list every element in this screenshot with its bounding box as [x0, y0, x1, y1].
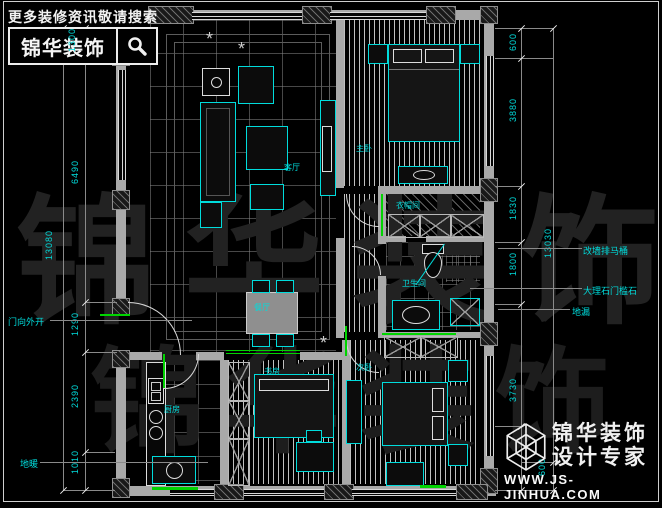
wardrobe-cell [420, 336, 458, 358]
dim-value: 3730 [508, 378, 518, 402]
dim-value: 2390 [70, 384, 80, 408]
column [324, 484, 354, 500]
column [302, 6, 332, 24]
dining-table [246, 292, 298, 334]
leader-line [50, 320, 192, 321]
note-floor-heating: 地暖 [20, 457, 38, 470]
dim-ext [495, 242, 521, 243]
kitchen-sink [148, 378, 164, 404]
dim-value: 1290 [70, 312, 80, 336]
dresser [398, 166, 448, 184]
brand-name: 锦华装饰 [10, 29, 116, 63]
kitchen-door-leaf [163, 354, 165, 388]
dim-line-left-inner [85, 28, 86, 490]
note-marble-threshold: 大理石门槛石 [583, 284, 637, 297]
pillow [425, 49, 454, 63]
leader-line [40, 462, 208, 463]
stove-burner [149, 410, 163, 424]
wall-corridor-right-b [378, 276, 386, 336]
window [170, 489, 214, 496]
column [112, 190, 130, 210]
dim-ext [495, 304, 521, 305]
wardrobe-cell [384, 336, 422, 358]
wall-living-master [336, 20, 344, 188]
nightstand [448, 360, 468, 382]
sofa [200, 102, 236, 202]
chair [252, 334, 270, 347]
room-label-kitchen: 厨房 [164, 404, 180, 415]
dim-line-right-outer [553, 28, 554, 490]
wardrobe-cell [228, 362, 250, 402]
leader-line [498, 248, 582, 249]
wall-rooms-top-c [300, 352, 344, 360]
washer [152, 456, 196, 484]
cube-logo-icon [503, 422, 549, 477]
leader-line [498, 309, 570, 310]
desk-cabinet [346, 380, 362, 444]
master-bed [388, 44, 460, 142]
wardrobe-cell [450, 214, 484, 238]
note-floor-drain: 地漏 [572, 305, 590, 318]
chair [276, 280, 294, 293]
room-label-living: 客厅 [284, 162, 300, 173]
pillow [432, 388, 444, 412]
study-bed [254, 374, 334, 438]
armchair [238, 66, 274, 104]
pillow [393, 49, 422, 63]
chair [252, 280, 270, 293]
window [330, 12, 426, 20]
nightstand [448, 444, 468, 466]
column [214, 484, 244, 500]
frame-right [658, 1, 659, 502]
chair [276, 334, 294, 347]
side-table [202, 68, 230, 96]
wall-left-lower [116, 356, 126, 490]
dim-ext [85, 452, 115, 453]
coffee-table [246, 126, 288, 170]
threshold-line [382, 333, 456, 335]
column [426, 6, 456, 24]
footer-brand-line1: 锦华装饰 [552, 422, 648, 445]
footer-url: WWW.JS-JINHUA.COM [504, 472, 662, 502]
column [456, 484, 488, 500]
threshold-line [420, 485, 446, 488]
stove-burner [149, 426, 163, 440]
header-tagline: 更多装修资讯敬请搜索 [8, 7, 158, 27]
wardrobe-cell [388, 214, 421, 238]
plant-icon: * [320, 334, 327, 352]
dim-value: 600 [508, 33, 518, 51]
dim-value: 3880 [508, 98, 518, 122]
nightstand [460, 44, 480, 64]
dim-ext [495, 28, 553, 29]
second-bed [382, 382, 448, 446]
dim-value: 13030 [543, 228, 553, 258]
window [486, 356, 494, 456]
room-label-master: 主卧 [356, 143, 372, 154]
dim-value: 1300 [67, 28, 77, 52]
note-door-opens-out: 门向外开 [8, 315, 44, 328]
dim-ext [495, 58, 553, 59]
footer-brand-line2: 设计专家 [552, 446, 648, 469]
shoe-cabinet [200, 202, 222, 228]
threshold-line [381, 194, 383, 236]
sink-icon [402, 306, 430, 324]
sliding-door-line [226, 353, 300, 354]
dim-value: 6490 [70, 160, 80, 184]
search-icon [116, 29, 156, 63]
dim-ext [85, 352, 117, 353]
wall-left-mid [116, 194, 126, 304]
frame-left [3, 1, 4, 502]
dim-line-right-inner [521, 28, 522, 490]
wardrobe-cell [228, 400, 250, 440]
room-label-second: 次卧 [356, 362, 372, 373]
column [480, 6, 498, 24]
plant-icon: * [238, 40, 245, 58]
window [244, 489, 324, 496]
room-label-study: 书房 [264, 366, 280, 377]
tv [322, 126, 332, 172]
washing-machine [450, 298, 480, 326]
dim-value: 1800 [508, 252, 518, 276]
column [112, 478, 130, 498]
dim-ext [495, 186, 521, 187]
window [192, 12, 302, 20]
window [352, 489, 456, 496]
armchair-2 [250, 184, 284, 210]
desk [296, 442, 334, 472]
sliding-door-line [226, 350, 300, 351]
plant-icon: * [206, 30, 213, 48]
column [480, 178, 498, 202]
pillow [432, 416, 444, 440]
wall-corridor-left [336, 238, 344, 338]
threshold-line [345, 326, 347, 356]
threshold-line [152, 487, 198, 490]
room-label-bath: 卫生间 [402, 278, 426, 289]
entry-threshold [100, 314, 130, 316]
dim-value: 1830 [508, 196, 518, 220]
vanity [392, 300, 440, 330]
wardrobe-cell [228, 438, 250, 486]
window [486, 56, 494, 166]
dim-ext [63, 490, 115, 491]
floor-plan-screenshot: 锦华装饰 锦华装饰 [0, 0, 662, 508]
note-wall-drain-toilet: 改墙排马桶 [583, 244, 628, 257]
small-desk [386, 462, 424, 486]
wall-kitchen-study [220, 360, 228, 486]
leader-line [470, 288, 582, 289]
wall-rooms-top-b [196, 352, 224, 360]
nightstand [368, 44, 388, 64]
magnifier-glyph [126, 35, 148, 57]
dim-ext [85, 302, 117, 303]
wardrobe-cell [419, 214, 452, 238]
dim-value: 13080 [44, 230, 54, 260]
frame-top [3, 1, 658, 2]
stool [306, 430, 322, 442]
room-label-dining: 餐厅 [254, 302, 270, 313]
room-label-cloak: 衣帽间 [396, 200, 420, 211]
dim-line-left-outer [63, 28, 64, 490]
window [118, 70, 126, 180]
wall-master-bottom [378, 186, 484, 194]
column [480, 322, 498, 346]
brand-logo-box: 锦华装饰 [8, 27, 158, 65]
